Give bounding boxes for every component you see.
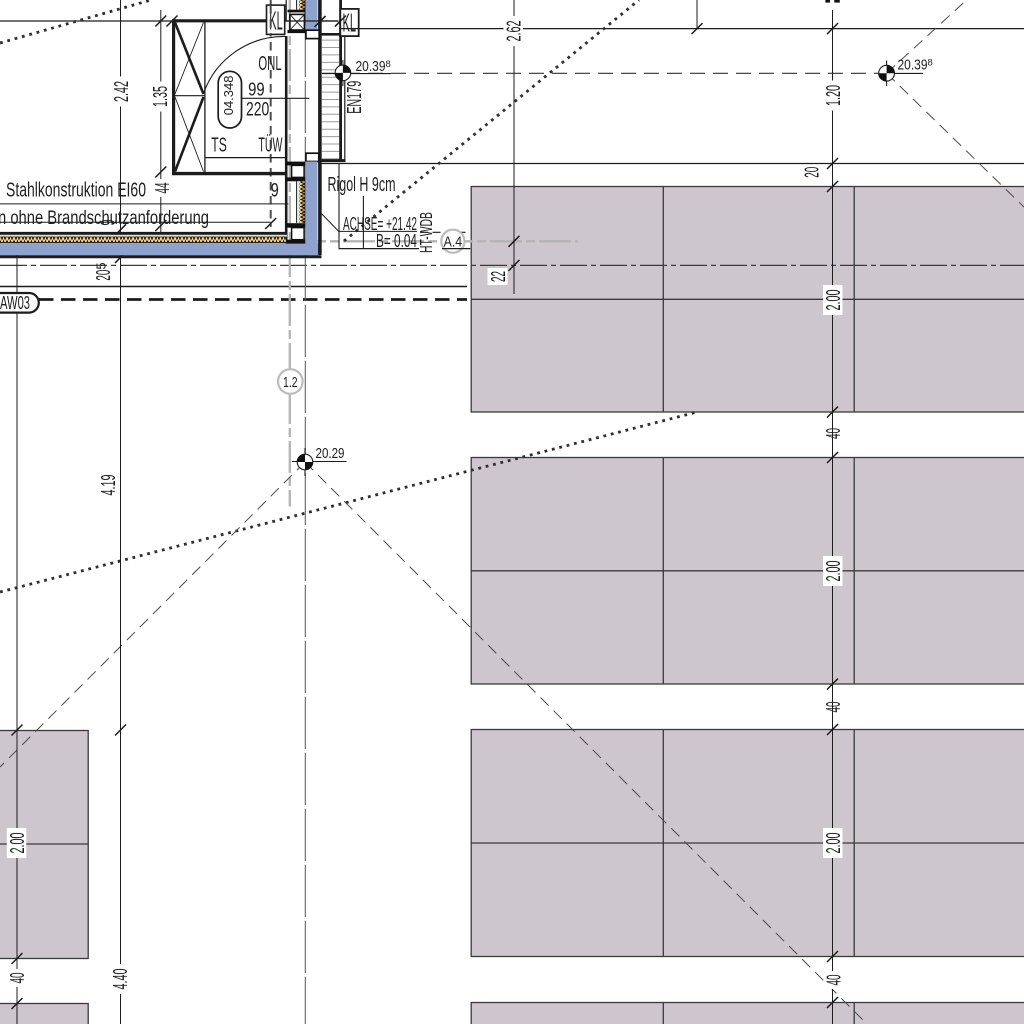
svg-text:40: 40 — [822, 428, 845, 439]
svg-text:9: 9 — [96, 220, 119, 226]
svg-text:TÜW: TÜW — [258, 134, 282, 157]
svg-text:9: 9 — [271, 180, 279, 202]
svg-text:04.348: 04.348 — [221, 76, 236, 116]
svg-text:44: 44 — [151, 183, 174, 194]
svg-text:20: 20 — [801, 167, 824, 178]
svg-text:220: 220 — [246, 98, 269, 120]
svg-text:TS: TS — [211, 134, 227, 157]
svg-text:40: 40 — [6, 973, 29, 984]
svg-text:1.20: 1.20 — [822, 85, 845, 106]
svg-text:1.35: 1.35 — [149, 86, 172, 107]
svg-text:HT-WDB: HT-WDB — [416, 212, 436, 253]
svg-text:Stahlkonstruktion EI60: Stahlkonstruktion EI60 — [6, 179, 146, 202]
svg-text:AW03: AW03 — [0, 293, 30, 313]
svg-text:B= 0.04: B= 0.04 — [376, 231, 417, 251]
svg-text:1.2: 1.2 — [283, 374, 298, 391]
svg-text:2.42: 2.42 — [110, 81, 133, 102]
svg-text:2.00: 2.00 — [6, 833, 29, 854]
svg-text:40: 40 — [822, 975, 845, 986]
svg-text:A.4: A.4 — [444, 234, 463, 251]
svg-text:EN179: EN179 — [343, 81, 366, 114]
svg-text:99: 99 — [248, 79, 265, 100]
svg-text:Rigol H 9cm: Rigol H 9cm — [328, 173, 396, 196]
svg-text:KL: KL — [343, 10, 357, 38]
svg-text:2.00: 2.00 — [822, 561, 845, 582]
svg-text:20.29: 20.29 — [316, 445, 345, 462]
svg-text:40: 40 — [822, 702, 845, 713]
svg-text:2.62: 2.62 — [503, 21, 526, 42]
svg-text:4.19: 4.19 — [97, 475, 120, 496]
svg-text:2.00: 2.00 — [822, 290, 845, 311]
svg-text:ONL: ONL — [258, 52, 281, 75]
svg-text:2.00: 2.00 — [822, 833, 845, 854]
svg-text:22: 22 — [487, 271, 510, 282]
svg-text:4.40: 4.40 — [109, 969, 132, 990]
